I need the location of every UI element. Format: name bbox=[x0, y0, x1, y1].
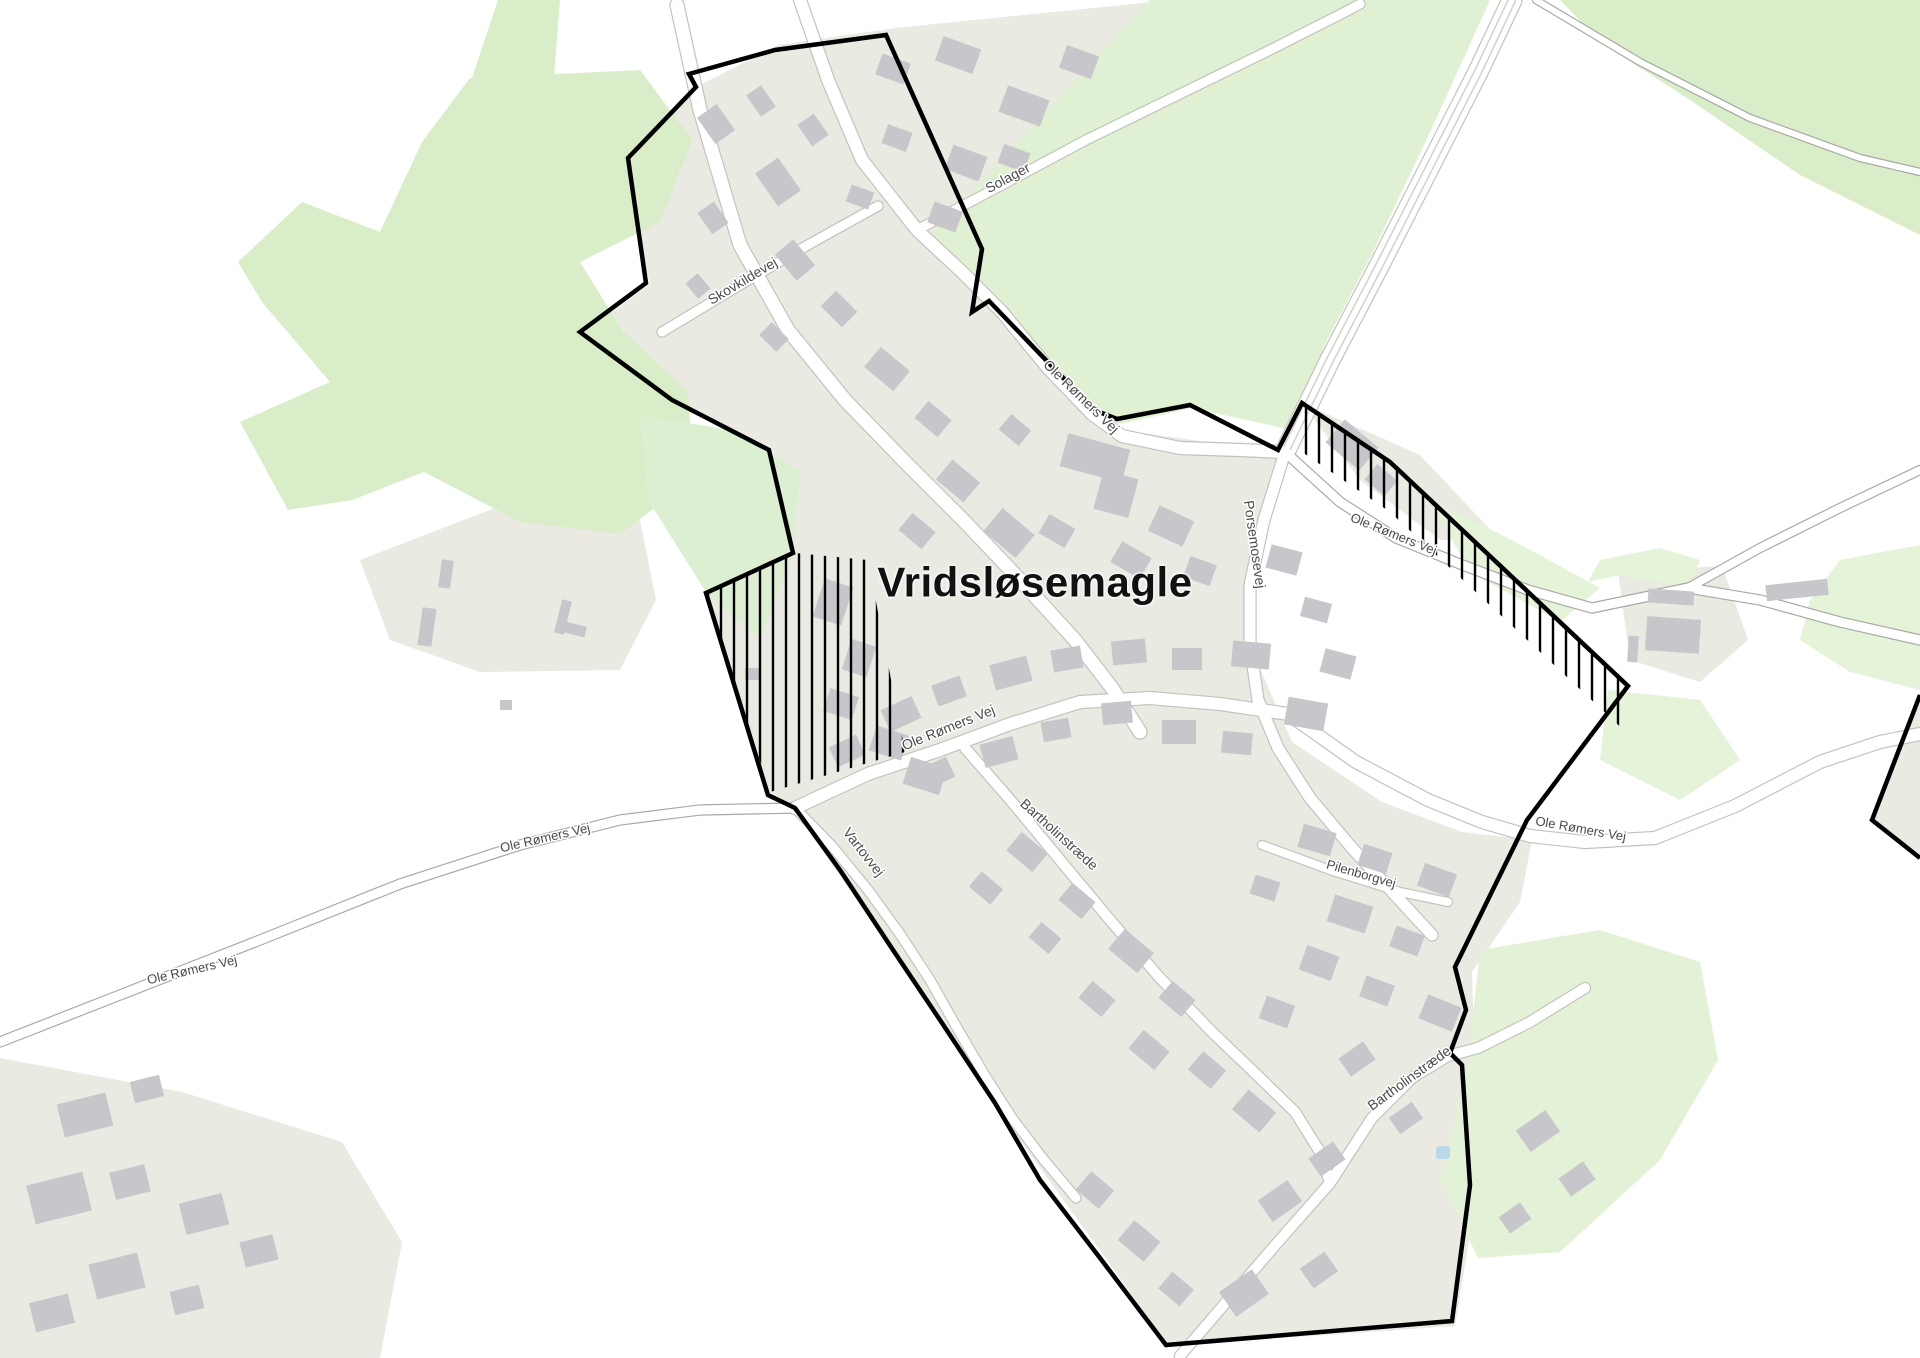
water bbox=[1436, 1146, 1450, 1159]
building bbox=[1162, 720, 1196, 744]
building bbox=[1645, 616, 1701, 654]
map-canvas[interactable]: SkovkildevejSolagerOle Rømers VejOle Røm… bbox=[0, 0, 1920, 1358]
building bbox=[1101, 701, 1133, 726]
building bbox=[500, 700, 512, 710]
building bbox=[1221, 731, 1253, 756]
building bbox=[1111, 639, 1147, 666]
map-svg: SkovkildevejSolagerOle Rømers VejOle Røm… bbox=[0, 0, 1920, 1358]
building bbox=[1231, 640, 1271, 669]
pond bbox=[1436, 1146, 1450, 1159]
building bbox=[1627, 636, 1639, 663]
building bbox=[1172, 648, 1202, 670]
town-label: Vridsløsemagle bbox=[877, 559, 1192, 607]
